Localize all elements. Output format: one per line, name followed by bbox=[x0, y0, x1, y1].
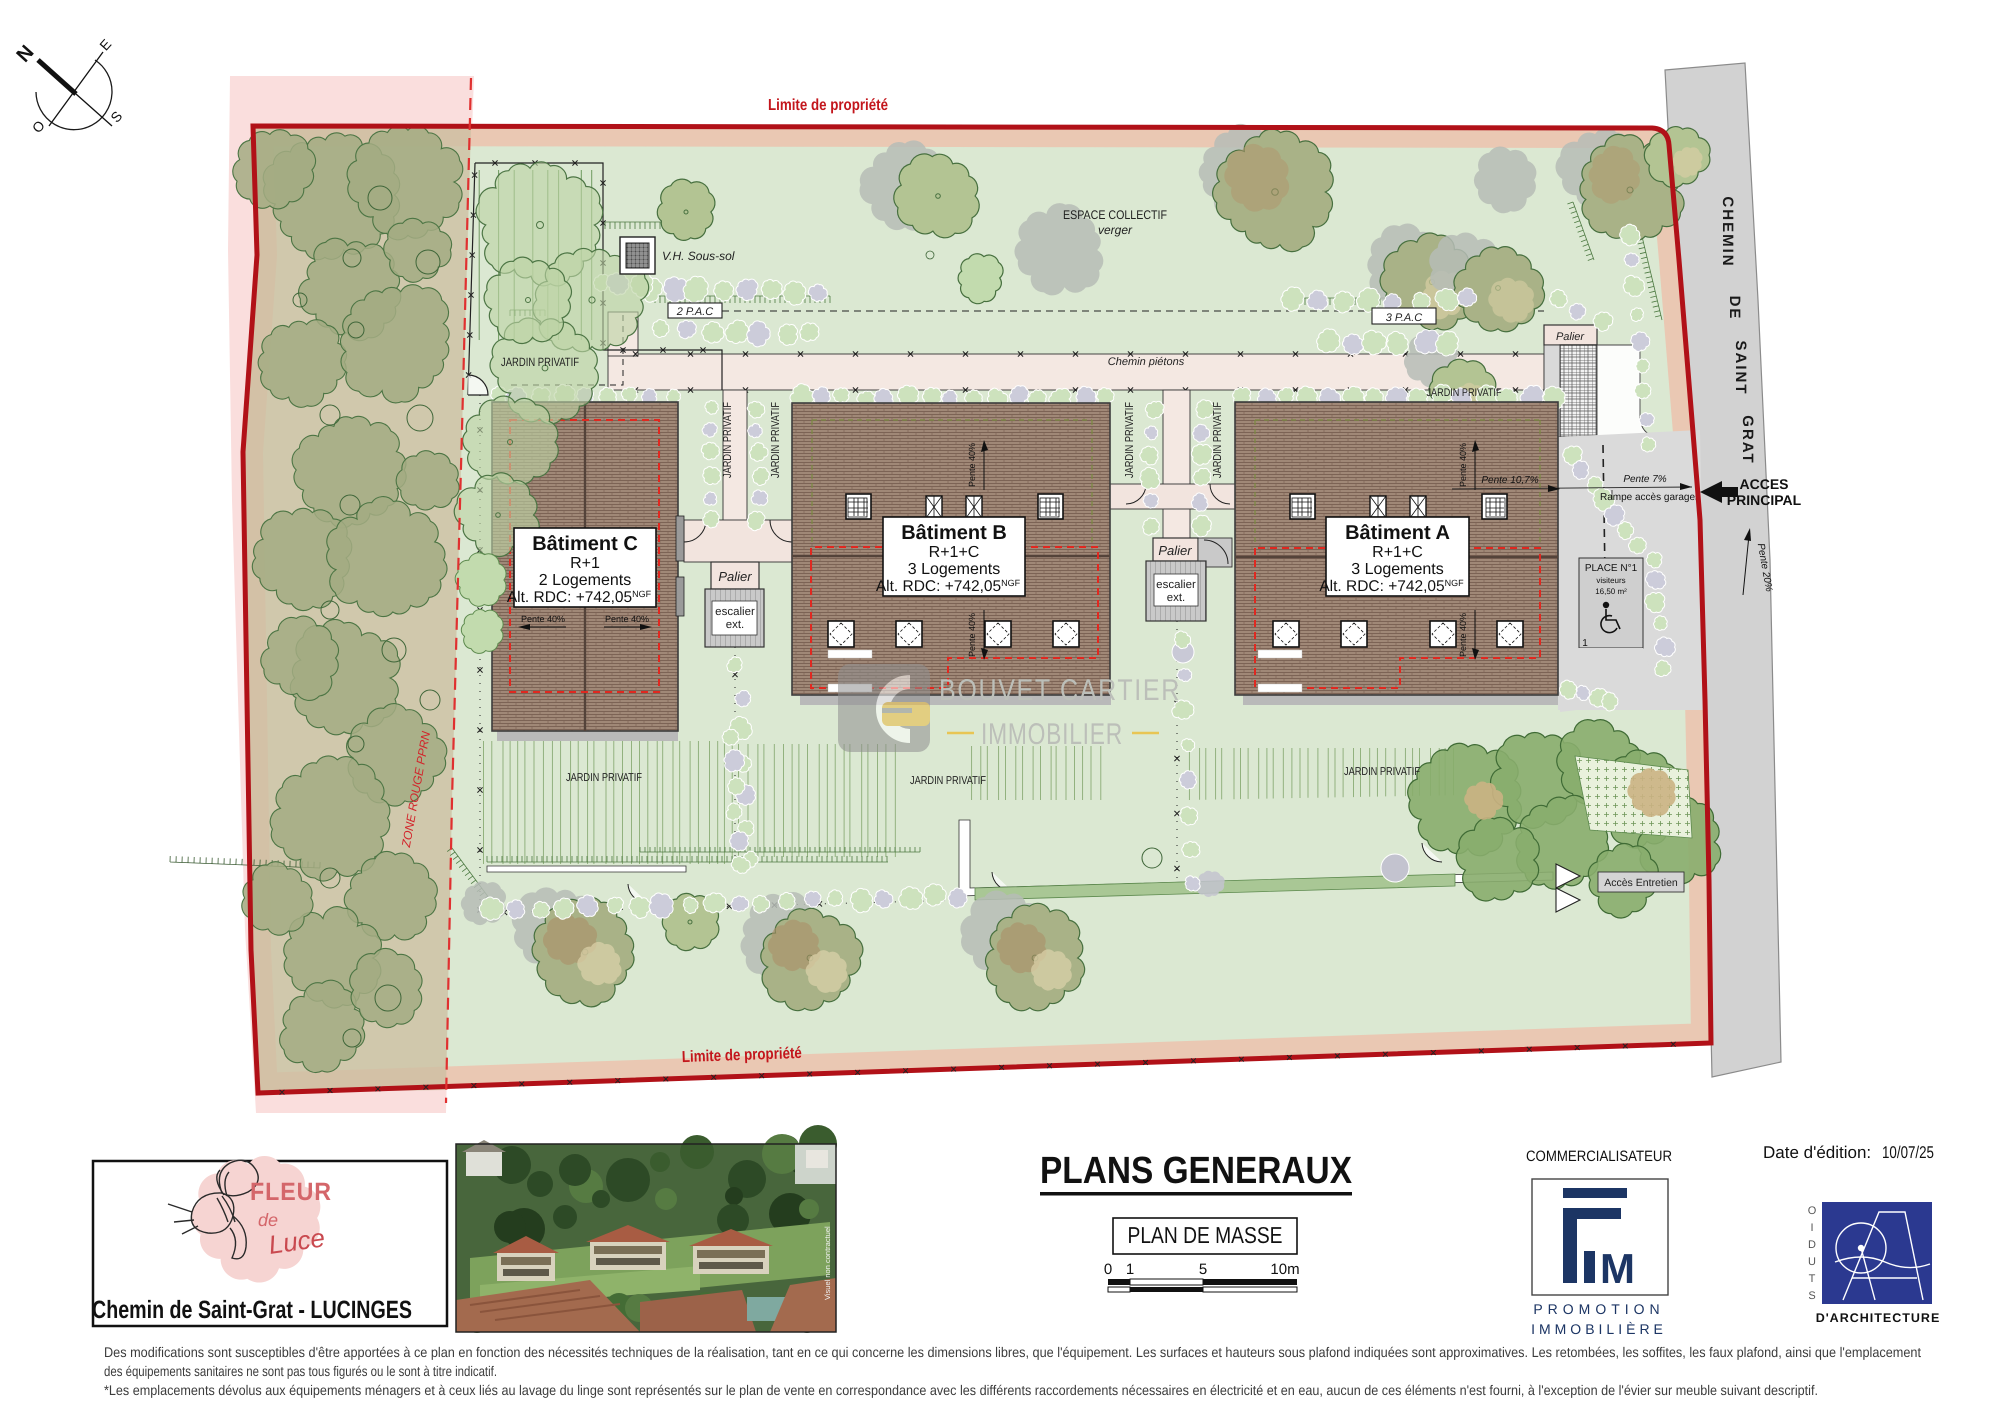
svg-text:D'ARCHITECTURE: D'ARCHITECTURE bbox=[1816, 1311, 1941, 1325]
svg-text:I: I bbox=[1810, 1222, 1813, 1234]
svg-text:O: O bbox=[1808, 1205, 1817, 1217]
svg-text:Pente 40%: Pente 40% bbox=[967, 613, 977, 657]
svg-text:2 P.A.C: 2 P.A.C bbox=[676, 306, 714, 318]
svg-text:Chemin piétons: Chemin piétons bbox=[1108, 356, 1185, 368]
svg-text:Limite de propriété: Limite de propriété bbox=[768, 97, 888, 114]
svg-text:D: D bbox=[1808, 1239, 1816, 1251]
svg-text:Bâtiment A: Bâtiment A bbox=[1345, 522, 1450, 544]
svg-text:T: T bbox=[1809, 1273, 1816, 1285]
svg-text:Pente 40%: Pente 40% bbox=[1458, 613, 1468, 657]
svg-text:Palier: Palier bbox=[1158, 543, 1192, 558]
svg-text:Pente 10,7%: Pente 10,7% bbox=[1481, 475, 1538, 486]
svg-text:5: 5 bbox=[1199, 1261, 1207, 1278]
svg-text:E: E bbox=[96, 36, 114, 54]
svg-text:JARDIN PRIVATIF: JARDIN PRIVATIF bbox=[722, 402, 734, 478]
svg-text:Pente 40%: Pente 40% bbox=[967, 443, 977, 487]
svg-text:Palier: Palier bbox=[718, 569, 752, 584]
svg-text:R+1+C: R+1+C bbox=[929, 544, 980, 561]
svg-text:Pente 40%: Pente 40% bbox=[1458, 443, 1468, 487]
svg-text:3 P.A.C: 3 P.A.C bbox=[1386, 312, 1423, 324]
svg-text:Alt. RDC: +742,05NGF: Alt. RDC: +742,05NGF bbox=[876, 578, 1021, 595]
svg-text:PLACE N°1: PLACE N°1 bbox=[1585, 563, 1638, 574]
svg-text:2 Logements: 2 Logements bbox=[539, 572, 632, 589]
svg-text:10m: 10m bbox=[1270, 1261, 1299, 1278]
svg-text:PROMOTION: PROMOTION bbox=[1533, 1301, 1664, 1317]
svg-text:O: O bbox=[29, 117, 48, 136]
svg-text:Alt. RDC: +742,05NGF: Alt. RDC: +742,05NGF bbox=[1319, 578, 1464, 595]
svg-text:Chemin de Saint-Grat - LUCINGE: Chemin de Saint-Grat - LUCINGES bbox=[92, 1296, 412, 1324]
svg-text:V.H. Sous-sol: V.H. Sous-sol bbox=[662, 249, 735, 263]
svg-text:IMMOBILIER: IMMOBILIER bbox=[981, 718, 1123, 751]
svg-text:*Les emplacements dévolus aux: *Les emplacements dévolus aux équipement… bbox=[104, 1382, 1818, 1398]
svg-text:visiteurs: visiteurs bbox=[1596, 576, 1625, 585]
svg-text:JARDIN PRIVATIF: JARDIN PRIVATIF bbox=[501, 355, 579, 369]
svg-text:U: U bbox=[1808, 1256, 1816, 1268]
svg-text:JARDIN PRIVATIF: JARDIN PRIVATIF bbox=[566, 772, 642, 784]
svg-text:JARDIN PRIVATIF: JARDIN PRIVATIF bbox=[1212, 402, 1224, 478]
svg-text:JARDIN PRIVATIF: JARDIN PRIVATIF bbox=[1344, 766, 1420, 778]
svg-text:Pente 40%: Pente 40% bbox=[605, 614, 649, 624]
svg-text:1: 1 bbox=[1126, 1261, 1134, 1278]
svg-text:R+1+C: R+1+C bbox=[1372, 544, 1423, 561]
svg-text:escalier: escalier bbox=[1156, 579, 1196, 591]
svg-text:de: de bbox=[258, 1210, 278, 1230]
svg-text:Visuel non contractuel: Visuel non contractuel bbox=[823, 1226, 832, 1300]
svg-text:R+1: R+1 bbox=[570, 555, 600, 572]
svg-text:verger: verger bbox=[1098, 223, 1133, 237]
svg-text:16,50 m²: 16,50 m² bbox=[1595, 587, 1627, 596]
svg-text:PLAN DE MASSE: PLAN DE MASSE bbox=[1128, 1222, 1283, 1248]
svg-text:Bâtiment C: Bâtiment C bbox=[532, 533, 638, 555]
svg-text:ext.: ext. bbox=[726, 619, 745, 631]
svg-text:10/07/25: 10/07/25 bbox=[1882, 1143, 1934, 1162]
svg-text:S: S bbox=[107, 108, 125, 126]
svg-text:3 Logements: 3 Logements bbox=[908, 561, 1001, 578]
svg-text:JARDIN PRIVATIF: JARDIN PRIVATIF bbox=[1427, 387, 1502, 399]
svg-text:JARDIN PRIVATIF: JARDIN PRIVATIF bbox=[910, 775, 986, 787]
svg-text:PRINCIPAL: PRINCIPAL bbox=[1727, 492, 1802, 508]
svg-text:Accès Entretien: Accès Entretien bbox=[1604, 877, 1678, 889]
svg-text:des équipements sanitaires ne: des équipements sanitaires ne sont pas t… bbox=[104, 1363, 497, 1379]
svg-text:SAINT: SAINT bbox=[1732, 341, 1749, 396]
svg-text:BOUVET CARTIER: BOUVET CARTIER bbox=[939, 674, 1181, 707]
svg-text:ext.: ext. bbox=[1167, 592, 1186, 604]
svg-text:0: 0 bbox=[1104, 1261, 1112, 1278]
svg-text:Alt. RDC: +742,05NGF: Alt. RDC: +742,05NGF bbox=[507, 589, 652, 606]
svg-text:CHEMIN: CHEMIN bbox=[1719, 196, 1736, 267]
svg-text:Date d'édition:: Date d'édition: bbox=[1763, 1143, 1871, 1162]
svg-text:Bâtiment B: Bâtiment B bbox=[901, 522, 1007, 544]
svg-text:S: S bbox=[1808, 1290, 1815, 1302]
svg-text:M: M bbox=[1600, 1245, 1635, 1292]
svg-text:N: N bbox=[13, 41, 39, 66]
svg-text:ESPACE COLLECTIF: ESPACE COLLECTIF bbox=[1063, 208, 1167, 222]
svg-text:escalier: escalier bbox=[715, 606, 755, 618]
svg-text:JARDIN PRIVATIF: JARDIN PRIVATIF bbox=[1124, 402, 1136, 478]
svg-text:FLEUR: FLEUR bbox=[250, 1178, 332, 1206]
svg-text:ACCES: ACCES bbox=[1739, 476, 1788, 492]
svg-text:IMMOBILIÈRE: IMMOBILIÈRE bbox=[1531, 1321, 1667, 1337]
svg-text:Pente 7%: Pente 7% bbox=[1623, 474, 1666, 485]
svg-text:PLANS GENERAUX: PLANS GENERAUX bbox=[1040, 1150, 1353, 1192]
svg-text:Palier: Palier bbox=[1556, 331, 1585, 343]
svg-text:Rampe accès garages: Rampe accès garages bbox=[1600, 492, 1700, 503]
svg-text:1: 1 bbox=[1582, 638, 1588, 649]
svg-text:Des modifications sont suscept: Des modifications sont susceptibles d'êt… bbox=[104, 1344, 1921, 1360]
svg-text:COMMERCIALISATEUR: COMMERCIALISATEUR bbox=[1526, 1148, 1672, 1165]
svg-text:DE: DE bbox=[1726, 296, 1743, 321]
svg-text:Pente 40%: Pente 40% bbox=[521, 614, 565, 624]
svg-text:3 Logements: 3 Logements bbox=[1351, 561, 1444, 578]
svg-text:JARDIN PRIVATIF: JARDIN PRIVATIF bbox=[770, 402, 782, 478]
svg-text:GRAT: GRAT bbox=[1739, 415, 1756, 464]
